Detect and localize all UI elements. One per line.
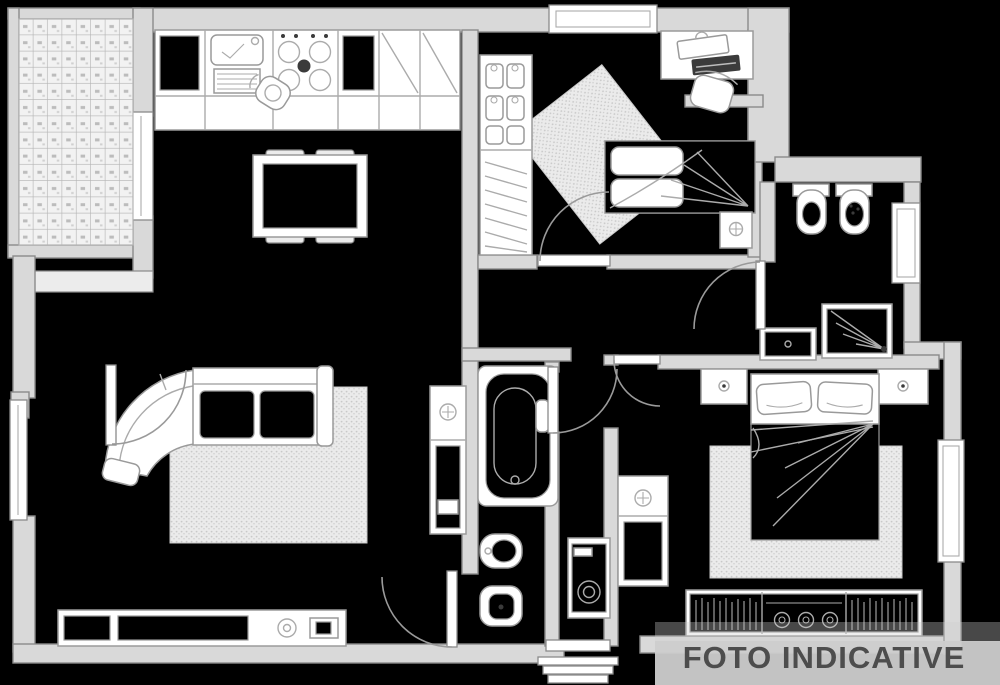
nightstand-right-icon (878, 369, 928, 404)
sink-icon (211, 35, 263, 93)
window-master-right-icon (938, 440, 964, 562)
toilet-center-icon (480, 586, 522, 626)
floor-plan-svg: FOTO INDICATIVE (0, 0, 1000, 685)
toilet-icon (793, 184, 829, 234)
bidet-icon (836, 184, 872, 234)
window-living-left-icon (10, 400, 27, 520)
terrace-tiled-floor (19, 19, 133, 245)
terrace (19, 19, 133, 245)
nightstand-left-icon (701, 369, 747, 404)
bathroom-cabinet-icon (760, 328, 816, 360)
door-hall-icon (382, 571, 457, 647)
watermark-band: FOTO INDICATIVE (655, 622, 1000, 685)
bedside-unit-icon (720, 212, 752, 248)
entry-door-icon (538, 640, 618, 683)
tall-cabinet-icon (430, 386, 466, 534)
washing-machine-icon (568, 538, 610, 618)
hall-cabinet-icon (618, 476, 668, 586)
floor-plan-image: FOTO INDICATIVE (0, 0, 1000, 685)
kitchen-counter-icon (155, 30, 460, 130)
bathtub-icon (478, 366, 558, 506)
single-bed-icon (605, 141, 755, 213)
dining-table-icon (253, 150, 367, 243)
window-top-icon (549, 5, 657, 33)
bathroom-center-door-icon (548, 367, 617, 433)
bathroom-top-door-icon (694, 261, 765, 329)
master-door-icon (614, 355, 660, 406)
living-room (58, 365, 466, 647)
shower-icon (822, 304, 892, 358)
wardrobe-icon (480, 55, 532, 255)
double-bed-icon (751, 374, 879, 540)
sideboard-icon (58, 610, 346, 646)
window-bathroom-right-icon (892, 203, 920, 283)
watermark-text: FOTO INDICATIVE (683, 640, 966, 675)
bedroom (480, 29, 755, 266)
bidet-center-icon (480, 534, 522, 568)
kitchen-dining (155, 30, 460, 243)
